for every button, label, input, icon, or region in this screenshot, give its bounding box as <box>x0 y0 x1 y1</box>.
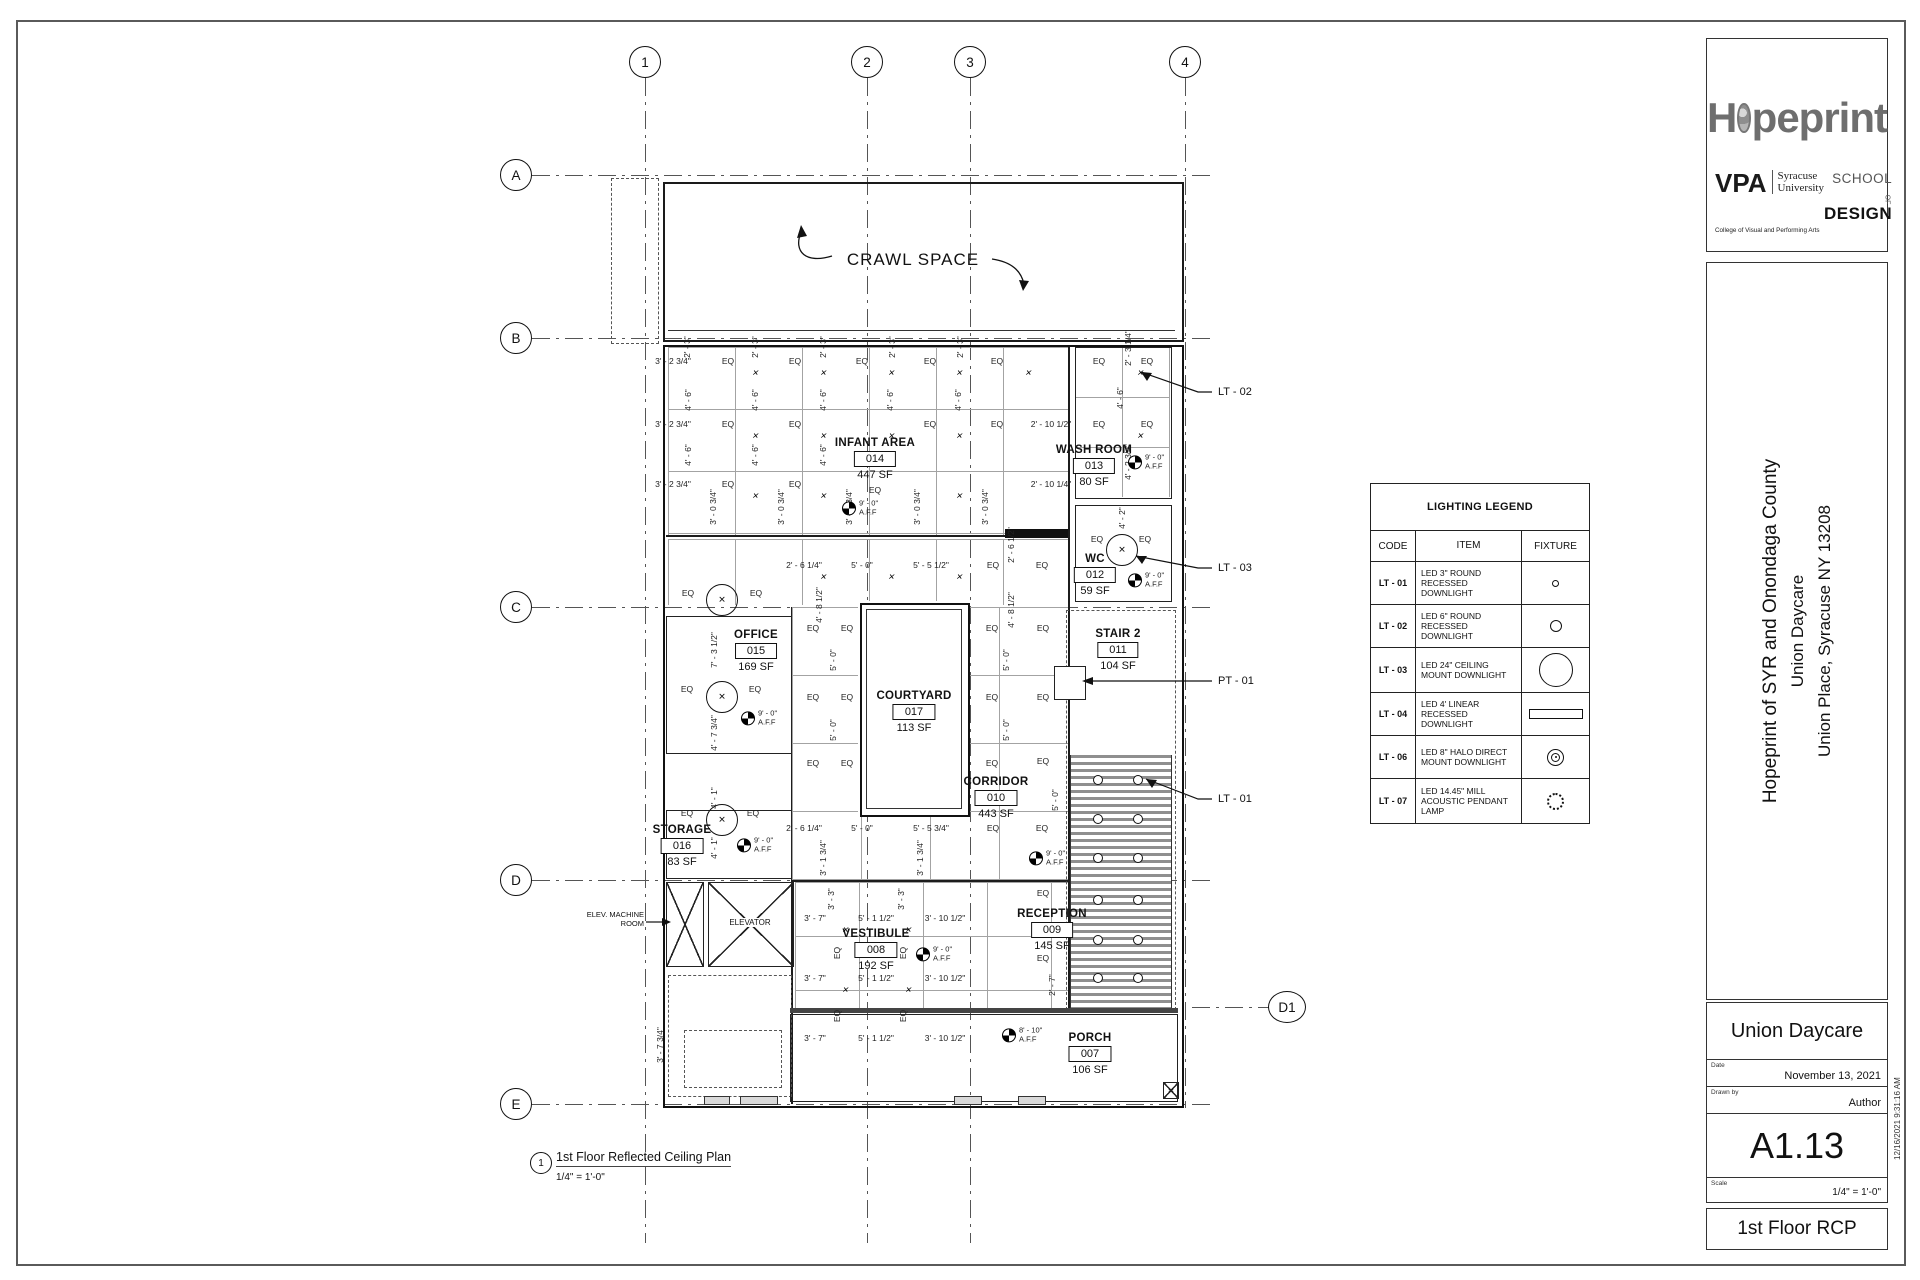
dim-label: 7' - 3 1/2" <box>709 632 719 668</box>
lt01-downlight <box>1133 895 1143 905</box>
legend-row-lt07: LT - 07 LED 14.45" MILL ACOUSTIC PENDANT… <box>1371 779 1589 823</box>
dim-eq: EQ <box>722 419 734 429</box>
school-text: SCHOOL <box>1832 171 1892 186</box>
dim-eq: EQ <box>722 356 734 366</box>
dim-eq: EQ <box>1036 823 1048 833</box>
dim-eq: EQ <box>1036 560 1048 570</box>
legend-code: LT - 06 <box>1371 736 1416 778</box>
callout-text: PT - 01 <box>1218 675 1254 687</box>
dim-label: 4' - 6" <box>683 389 693 411</box>
dim-label: 4' - 2" <box>1117 507 1127 529</box>
door-tick <box>740 1096 778 1105</box>
elevation-marker: 9' - 0"A.F.F <box>1128 453 1164 470</box>
legend-code: LT - 01 <box>1371 562 1416 604</box>
logo-box: Hpeprint VPA Syracuse University SCHOOLO… <box>1706 38 1888 252</box>
uni-line1: Syracuse <box>1778 170 1818 182</box>
dim-eq: EQ <box>991 356 1003 366</box>
room-label-corridor: CORRIDOR 010 443 SF <box>963 776 1028 820</box>
drawing-sheet: 1 2 3 4 A B C D E D1 CRAWL SPACE ELEVATO… <box>0 0 1920 1280</box>
elevation-marker: 9' - 0"A.F.F <box>916 945 952 962</box>
dim-label: 2' - 7" <box>1047 974 1057 996</box>
dim-eq: EQ <box>789 479 801 489</box>
partner-logos: VPA Syracuse University SCHOOLOF DESIGN <box>1707 170 1887 224</box>
view-title-text: 1st Floor Reflected Ceiling Plan <box>556 1150 731 1164</box>
room-name: VESTIBULE <box>842 928 909 940</box>
porch-outline <box>790 1014 1178 1102</box>
dim-label: 5' - 0" <box>851 823 873 833</box>
legend-row-lt04: LT - 04 LED 4' LINEAR RECESSED DOWNLIGHT <box>1371 693 1589 736</box>
large-circle-fixture-icon <box>1539 653 1573 687</box>
project-line3: Union Place, Syracuse NY 13208 <box>1812 459 1838 803</box>
elevation-marker-icon <box>842 501 856 515</box>
grid-bubble-D1: D1 <box>1268 991 1306 1023</box>
dim-label: 2' - 3" <box>818 336 828 358</box>
lighting-legend: LIGHTING LEGEND CODE ITEM FIXTURE LT - 0… <box>1370 483 1590 824</box>
elevation-suffix: A.F.F <box>859 507 877 516</box>
grid-intersection-mark <box>888 432 895 441</box>
dim-eq: EQ <box>749 684 761 694</box>
drawn-by-label: Drawn by <box>1711 1089 1738 1096</box>
elevation-marker: 9' - 0"A.F.F <box>1029 849 1065 866</box>
room-area: 113 SF <box>876 722 951 734</box>
dim-eq: EQ <box>856 356 868 366</box>
dim-eq: EQ <box>1037 756 1049 766</box>
dim-label: 5' - 0" <box>1001 649 1011 671</box>
elevation-suffix: A.F.F <box>1145 579 1163 588</box>
room-number: 015 <box>735 643 777 659</box>
sheet-title: 1st Floor RCP <box>1737 1218 1856 1240</box>
uni-line2: University <box>1778 182 1824 194</box>
grid-intersection-mark <box>1137 432 1144 441</box>
room-number: 009 <box>1031 922 1073 938</box>
dim-eq: EQ <box>986 758 998 768</box>
elevator-label-text: ELEVATOR <box>729 918 770 927</box>
room-name: PORCH <box>1068 1032 1111 1044</box>
drawn-by-row: Drawn by Author <box>1706 1087 1888 1114</box>
dim-eq: EQ <box>722 479 734 489</box>
room-name: CORRIDOR <box>963 776 1028 788</box>
dim-label: 3' - 7" <box>804 973 826 983</box>
date-row: Date November 13, 2021 <box>1706 1060 1888 1087</box>
elevation-marker-icon <box>741 711 755 725</box>
client-name: Union Daycare <box>1731 1020 1863 1043</box>
elevation-marker: 9' - 0"A.F.F <box>1128 571 1164 588</box>
project-title-vertical: Hopeprint of SYR and Onondaga County Uni… <box>1756 459 1838 803</box>
legend-row-lt06: LT - 06 LED 8" HALO DIRECT MOUNT DOWNLIG… <box>1371 736 1589 779</box>
dim-label: 2' - 3 1/4" <box>1123 330 1133 366</box>
grid-bubble-label: B <box>511 331 520 346</box>
dim-label: 3' - 2 3/4" <box>655 479 691 489</box>
view-title: 1st Floor Reflected Ceiling Plan <box>556 1150 731 1167</box>
room-name: INFANT AREA <box>835 437 915 449</box>
door-tick <box>1018 1096 1046 1105</box>
dim-eq: EQ <box>841 623 853 633</box>
dim-label: 5' - 1 1/2" <box>858 1033 894 1043</box>
lt01-downlight <box>1133 853 1143 863</box>
dim-eq: EQ <box>841 758 853 768</box>
room-area: 145 SF <box>1017 940 1087 952</box>
dim-eq: EQ <box>807 692 819 702</box>
dim-label: 4' - 7 3/4" <box>709 715 719 751</box>
grid-intersection-mark <box>905 986 912 995</box>
elevation-marker: 9' - 0"A.F.F <box>842 499 878 516</box>
dim-label: 2' - 10 1/4" <box>1031 479 1072 489</box>
legend-header-item: ITEM <box>1416 531 1522 561</box>
callout-text: LT - 01 <box>1218 793 1252 805</box>
dim-label: 2' - 6 1/4" <box>786 823 822 833</box>
room-name: WC <box>1074 553 1116 565</box>
dim-label: 3' - 0 3/4" <box>776 489 786 525</box>
grid-intersection-mark <box>1025 369 1032 378</box>
dim-label: 5' - 0" <box>828 649 838 671</box>
room-number: 010 <box>975 790 1017 806</box>
grid-bubble-3: 3 <box>954 46 986 78</box>
room-name: STORAGE <box>653 824 712 836</box>
grid-bubble-C: C <box>500 591 532 623</box>
room-area: 104 SF <box>1095 660 1140 672</box>
grid-intersection-mark <box>888 369 895 378</box>
elevation-suffix: A.F.F <box>1046 857 1064 866</box>
view-scale-text: 1/4" = 1'-0" <box>556 1172 605 1183</box>
halo-fixture-icon <box>1547 749 1564 766</box>
dim-label: 3' - 1 3/4" <box>915 840 925 876</box>
room-label-storage: STORAGE 016 83 SF <box>653 824 712 868</box>
grid-bubble-label: E <box>511 1097 520 1112</box>
dim-eq: EQ <box>747 808 759 818</box>
brand-h: H <box>1707 94 1736 142</box>
room-number: 012 <box>1074 567 1116 583</box>
grid-intersection-mark <box>752 492 759 501</box>
dim-eq: EQ <box>682 588 694 598</box>
grid-intersection-mark <box>956 369 963 378</box>
chimney-dashed-outline <box>611 178 659 344</box>
grid-bubble-label: 2 <box>863 55 871 70</box>
project-line1: Hopeprint of SYR and Onondaga County <box>1756 459 1785 803</box>
title-block: Hpeprint VPA Syracuse University SCHOOLO… <box>1706 38 1890 1250</box>
room-name: STAIR 2 <box>1095 628 1140 640</box>
dim-label: 4' - 6" <box>1115 387 1125 409</box>
grid-intersection-mark <box>905 926 912 935</box>
view-scale: 1/4" = 1'-0" <box>556 1172 605 1183</box>
room-number: 017 <box>893 704 935 720</box>
legend-row-lt03: LT - 03 LED 24" CEILING MOUNT DOWNLIGHT <box>1371 648 1589 693</box>
legend-item: LED 4' LINEAR RECESSED DOWNLIGHT <box>1416 693 1522 735</box>
elev-machine-room-box <box>666 882 704 967</box>
dim-label: 3' - 7" <box>804 1033 826 1043</box>
room-label-porch: PORCH 007 106 SF <box>1068 1032 1111 1076</box>
elev-machine-room-line1: ELEV. MACHINE <box>566 910 644 919</box>
dim-label: 4' - 6" <box>818 444 828 466</box>
dim-label: 4' - 6" <box>750 444 760 466</box>
dim-eq: EQ <box>789 419 801 429</box>
grid-intersection-mark <box>752 432 759 441</box>
dim-label: 3' - 7 3/4" <box>655 1027 665 1063</box>
elevation-marker: 9' - 0"A.F.F <box>737 836 773 853</box>
legend-item: LED 24" CEILING MOUNT DOWNLIGHT <box>1416 648 1522 692</box>
grid-bubble-D: D <box>500 864 532 896</box>
school-of-text: OF <box>1884 195 1891 205</box>
dim-label: 3' - 0 3/4" <box>980 489 990 525</box>
grid-bubble-2: 2 <box>851 46 883 78</box>
dim-eq: EQ <box>841 692 853 702</box>
elev-machine-room-line2: ROOM <box>566 919 644 928</box>
room-name: WASH ROOM <box>1056 444 1132 456</box>
dim-eq: EQ <box>991 419 1003 429</box>
dim-label: 2' - 3" <box>887 336 897 358</box>
room-number: 007 <box>1069 1046 1111 1062</box>
project-box: Hopeprint of SYR and Onondaga County Uni… <box>1706 262 1888 1000</box>
room-label-stair2: STAIR 2 011 104 SF <box>1095 628 1140 672</box>
view-number-bubble: 1 <box>530 1152 552 1174</box>
elevation-suffix: A.F.F <box>1019 1034 1037 1043</box>
lt01-downlight <box>1093 853 1103 863</box>
dim-label: 5' - 1 1/2" <box>858 913 894 923</box>
small-circle-fixture-icon <box>1552 580 1559 587</box>
dim-eq: EQ <box>1037 692 1049 702</box>
grid-bubble-E: E <box>500 1088 532 1120</box>
legend-title: LIGHTING LEGEND <box>1371 484 1589 531</box>
pendant-fixture-icon <box>1547 793 1564 810</box>
dim-eq: EQ <box>789 356 801 366</box>
lt01-downlight <box>1093 935 1103 945</box>
dim-label: 4' - 1" <box>709 787 719 809</box>
dim-label: 3' - 2 3/4" <box>655 419 691 429</box>
legend-code: LT - 02 <box>1371 605 1416 647</box>
dim-eq: EQ <box>869 485 881 495</box>
grid-intersection-mark <box>888 573 895 582</box>
dim-eq: EQ <box>1037 623 1049 633</box>
dim-label: 2' - 10 1/2" <box>1031 419 1072 429</box>
plot-timestamp-text: 12/16/2021 9:31:16 AM <box>1893 1077 1902 1160</box>
dim-label: 2' - 3" <box>682 336 692 358</box>
drawn-by-value: Author <box>1849 1097 1881 1109</box>
dim-label: 2' - 6 1/2" <box>1006 527 1016 563</box>
dim-label: 4' - 8 1/2" <box>1006 592 1016 628</box>
hopeprint-logo: Hpeprint <box>1707 94 1887 142</box>
lt03-ceiling-mount <box>706 584 738 616</box>
room-area: 169 SF <box>734 661 778 673</box>
dim-eq: EQ <box>1093 356 1105 366</box>
sheet-title-box: 1st Floor RCP <box>1706 1208 1888 1250</box>
room-area: 106 SF <box>1068 1064 1111 1076</box>
dim-eq: EQ <box>1093 419 1105 429</box>
dim-eq: EQ <box>1141 419 1153 429</box>
lt01-downlight <box>1093 814 1103 824</box>
dim-label: 3' - 10 1/2" <box>925 913 966 923</box>
elevation-marker-icon <box>1128 455 1142 469</box>
dim-eq: EQ <box>924 419 936 429</box>
dim-eq: EQ <box>750 588 762 598</box>
elevation-marker-icon <box>1128 573 1142 587</box>
lt01-downlight <box>1093 895 1103 905</box>
grid-intersection-mark <box>956 573 963 582</box>
callout-pt01: PT - 01 <box>1218 675 1254 687</box>
legend-item: LED 8" HALO DIRECT MOUNT DOWNLIGHT <box>1416 736 1522 778</box>
dim-eq: EQ <box>924 356 936 366</box>
dim-label: 3' - 3" <box>826 888 836 910</box>
linear-bar-fixture-icon <box>1529 709 1583 719</box>
grid-intersection-mark <box>842 926 849 935</box>
design-text: DESIGN <box>1824 204 1892 224</box>
date-value: November 13, 2021 <box>1784 1070 1881 1082</box>
grid-intersection-mark <box>820 573 827 582</box>
legend-header-row: CODE ITEM FIXTURE <box>1371 531 1589 562</box>
elevation-marker-icon <box>1029 851 1043 865</box>
legend-item: LED 6" ROUND RECESSED DOWNLIGHT <box>1416 605 1522 647</box>
lt01-downlight <box>1133 973 1143 983</box>
grid-bubble-label: 3 <box>966 55 974 70</box>
grid-intersection-mark <box>752 369 759 378</box>
legend-header-code: CODE <box>1371 531 1416 561</box>
grid-bubble-4: 4 <box>1169 46 1201 78</box>
dim-label: 3' - 10 1/2" <box>925 973 966 983</box>
dim-eq: EQ <box>681 808 693 818</box>
grid-intersection-mark <box>842 986 849 995</box>
dim-eq: EQ <box>807 623 819 633</box>
dim-label: 3' - 10 1/2" <box>925 1033 966 1043</box>
vpa-logo: VPA <box>1715 170 1767 196</box>
dim-eq: EQ <box>1037 953 1049 963</box>
dim-eq: EQ <box>987 560 999 570</box>
room-area: 59 SF <box>1074 585 1116 597</box>
dim-eq: EQ <box>832 947 842 959</box>
elevator-label: ELEVATOR <box>727 918 772 927</box>
lt03-ceiling-mount <box>706 681 738 713</box>
elevation-suffix: A.F.F <box>933 953 951 962</box>
dim-eq: EQ <box>1037 888 1049 898</box>
slat-ceiling-reception <box>1070 755 1172 1008</box>
elevation-marker: 8' - 10"A.F.F <box>1002 1026 1042 1043</box>
dim-label: 4' - 1" <box>709 837 719 859</box>
legend-code: LT - 07 <box>1371 779 1416 823</box>
dim-eq: EQ <box>898 947 908 959</box>
grid-line-4 <box>1185 78 1186 1108</box>
dim-label: 2' - 3" <box>750 336 760 358</box>
room-label-infant-area: INFANT AREA 014 447 SF <box>835 437 915 481</box>
dim-eq: EQ <box>898 1010 908 1022</box>
dim-label: 5' - 5 1/2" <box>913 560 949 570</box>
room-number: 008 <box>855 942 897 958</box>
elevation-marker-icon <box>1002 1028 1016 1042</box>
elevation-suffix: A.F.F <box>754 844 772 853</box>
scale-row: Scale 1/4" = 1'-0" <box>1706 1178 1888 1203</box>
legend-row-lt02: LT - 02 LED 6" ROUND RECESSED DOWNLIGHT <box>1371 605 1589 648</box>
room-number: 011 <box>1097 642 1139 658</box>
room-area: 83 SF <box>653 856 712 868</box>
dim-label: 5' - 5 3/4" <box>913 823 949 833</box>
grid-line-A <box>532 175 1212 176</box>
dim-label: 5' - 0" <box>1001 719 1011 741</box>
lt01-downlight <box>1133 814 1143 824</box>
room-number: 014 <box>854 451 896 467</box>
lt01-downlight <box>1093 775 1103 785</box>
dim-label: 2' - 6 1/4" <box>786 560 822 570</box>
dim-label: 2' - 3" <box>955 336 965 358</box>
grid-bubble-B: B <box>500 322 532 354</box>
dim-label: 4' - 8 1/2" <box>814 587 824 623</box>
dim-label: 4' - 6" <box>885 389 895 411</box>
dim-label: 5' - 0" <box>1050 789 1060 811</box>
room-area: 443 SF <box>963 808 1028 820</box>
dim-eq: EQ <box>681 684 693 694</box>
legend-header-fixture: FIXTURE <box>1522 531 1589 561</box>
dim-label: 3' - 1 3/4" <box>818 840 828 876</box>
grid-bubble-label: A <box>511 168 520 183</box>
room-area: 447 SF <box>835 469 915 481</box>
client-box: Union Daycare <box>1706 1002 1888 1060</box>
scale-value: 1/4" = 1'-0" <box>1832 1187 1881 1198</box>
lt01-downlight <box>1133 775 1143 785</box>
brand-rest: peprint <box>1752 94 1887 142</box>
door-tick <box>954 1096 982 1105</box>
dim-eq: EQ <box>986 692 998 702</box>
dim-eq: EQ <box>1139 534 1151 544</box>
grid-intersection-mark <box>820 492 827 501</box>
room-name: RECEPTION <box>1017 908 1087 920</box>
legend-item: LED 14.45" MILL ACOUSTIC PENDANT LAMP <box>1416 779 1522 823</box>
legend-code: LT - 03 <box>1371 648 1416 692</box>
dim-label: 3' - 3" <box>896 888 906 910</box>
grid-line-D1 <box>1192 1007 1270 1008</box>
dim-label: 4' - 6" <box>953 389 963 411</box>
view-number: 1 <box>538 1158 544 1169</box>
room-number: 013 <box>1073 458 1115 474</box>
grid-bubble-label: 1 <box>641 55 649 70</box>
project-line2: Union Daycare <box>1785 459 1811 803</box>
grid-intersection-mark <box>820 369 827 378</box>
room-name: COURTYARD <box>876 690 951 702</box>
grid-bubble-label: D <box>511 873 521 888</box>
elevation-marker-icon <box>916 947 930 961</box>
legend-row-lt01: LT - 01 LED 3" ROUND RECESSED DOWNLIGHT <box>1371 562 1589 605</box>
grid-intersection-mark <box>956 432 963 441</box>
lt01-downlight <box>1093 973 1103 983</box>
dashed-room-inner <box>684 1030 782 1088</box>
grid-bubble-A: A <box>500 159 532 191</box>
legend-item: LED 3" ROUND RECESSED DOWNLIGHT <box>1416 562 1522 604</box>
college-caption: College of Visual and Performing Arts <box>1707 227 1887 234</box>
sheet-number-box: A1.13 <box>1706 1114 1888 1178</box>
elevation-marker: 9' - 0"A.F.F <box>741 709 777 726</box>
callout-lt01: LT - 01 <box>1218 793 1252 805</box>
callout-lt03: LT - 03 <box>1218 562 1252 574</box>
dim-label: 4' - 6" <box>818 389 828 411</box>
room-label-courtyard: COURTYARD 017 113 SF <box>876 690 951 734</box>
grid-bubble-label: 4 <box>1181 55 1189 70</box>
dim-label: 4' - 6" <box>683 444 693 466</box>
grid-intersection-mark <box>1137 369 1144 378</box>
door-tick <box>704 1096 730 1105</box>
dim-label: 3' - 7" <box>804 913 826 923</box>
medium-circle-fixture-icon <box>1550 620 1562 632</box>
callout-lt02: LT - 02 <box>1218 386 1252 398</box>
callout-text: LT - 02 <box>1218 386 1252 398</box>
room-label-wc: WC 012 59 SF <box>1074 553 1116 597</box>
dim-eq: EQ <box>1091 534 1103 544</box>
grid-bubble-1: 1 <box>629 46 661 78</box>
dim-eq: EQ <box>832 1010 842 1022</box>
globe-icon <box>1737 103 1750 133</box>
dim-eq: EQ <box>987 823 999 833</box>
date-label: Date <box>1711 1062 1725 1069</box>
sheet-number: A1.13 <box>1750 1125 1844 1167</box>
dim-eq: EQ <box>1141 356 1153 366</box>
dim-label: 3' - 0 3/4" <box>912 489 922 525</box>
syracuse-university-logo: Syracuse University <box>1772 170 1824 194</box>
elevation-marker-icon <box>737 838 751 852</box>
porch-column-box <box>1163 1082 1179 1099</box>
dim-label: 5' - 1 1/2" <box>858 973 894 983</box>
